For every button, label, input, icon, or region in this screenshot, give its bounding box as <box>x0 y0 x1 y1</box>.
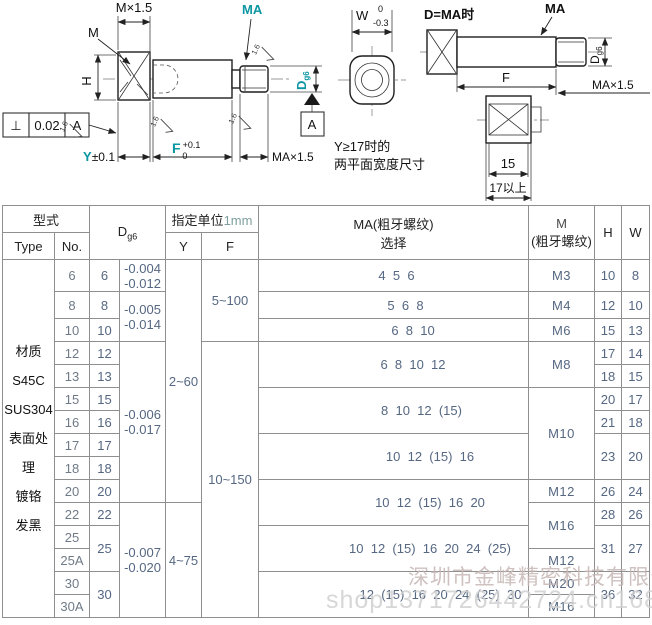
cell-ma: 6 8 10 12 <box>259 342 529 388</box>
svg-text:17以上: 17以上 <box>489 181 526 195</box>
cell-w: 17 <box>622 388 650 411</box>
cell-h: 12 <box>595 292 622 319</box>
svg-text:M×1.5: M×1.5 <box>116 0 153 15</box>
cell-ma: 12 (15) 16 20 24 (25) 30 <box>259 572 529 618</box>
cell-d: 20 <box>90 480 120 503</box>
left-view: M×1.5 M MA H <box>3 0 324 164</box>
cell-w: 8 <box>622 260 650 292</box>
cell-ma: 5 6 8 <box>259 292 529 319</box>
header-m: M(粗牙螺纹) <box>529 206 595 260</box>
cell-no: 16 <box>55 411 90 434</box>
dim-y: Y±0.1 <box>83 149 150 164</box>
roughness-icon: 1.6 <box>249 43 276 63</box>
cell-m: M12 <box>529 549 595 572</box>
cell-m: M16 <box>529 503 595 549</box>
d-label: D <box>294 81 309 90</box>
cell-y: 4~75 <box>166 503 202 618</box>
cell-m: M20 <box>529 572 595 595</box>
header-ma: MA(粗牙螺纹)选择 <box>259 206 529 260</box>
svg-text:M: M <box>88 25 99 40</box>
cell-y: 2~60 <box>166 260 202 503</box>
cell-d: 10 <box>90 319 120 342</box>
head-top-view: 15 17以上 <box>477 96 549 201</box>
dim-ma-thread: MA×1.5 <box>558 78 650 93</box>
cell-ma: 10 12 (15) 16 20 <box>259 480 529 526</box>
dim-f: F+0.10 <box>153 140 232 161</box>
flat-width-note: Y≥17时的 两平面宽度尺寸 <box>334 139 425 172</box>
screw-head <box>118 52 150 100</box>
cell-no: 8 <box>55 292 90 319</box>
dim-w: W 0 -0.3 <box>352 4 392 52</box>
table-row: 材质S45CSUS304表面处理镀铬发黑66-0.004-0.0122~605~… <box>3 260 650 292</box>
cell-d: 30 <box>90 572 120 618</box>
cell-ma: 4 5 6 <box>259 260 529 292</box>
variant-title: D=MA时 <box>424 7 474 22</box>
cell-no: 20 <box>55 480 90 503</box>
cell-h: 18 <box>595 365 622 388</box>
svg-text:0: 0 <box>378 4 383 14</box>
cell-no: 25 <box>55 526 90 549</box>
datum-triangle <box>304 93 320 105</box>
dim-17-min: 17以上 <box>486 143 531 201</box>
svg-text:MA: MA <box>242 2 263 17</box>
dim-15: 15 <box>489 143 528 177</box>
screw-shank <box>457 37 556 67</box>
header-d-g6: Dg6 <box>90 206 166 260</box>
svg-text:Y≥17时的: Y≥17时的 <box>334 139 390 154</box>
cell-d: 13 <box>90 365 120 388</box>
cell-d: 16 <box>90 411 120 434</box>
cell-h: 15 <box>595 319 622 342</box>
screw-head <box>427 30 457 74</box>
cell-m: M4 <box>529 292 595 319</box>
cell-d: 25 <box>90 526 120 572</box>
table-row: 202010 12 (15) 16 20M122624 <box>3 480 650 503</box>
screw-thread <box>240 66 268 92</box>
cell-h: 31 <box>595 526 622 572</box>
cell-w: 13 <box>622 319 650 342</box>
screw-thread <box>556 38 586 66</box>
cell-m: M8 <box>529 342 595 388</box>
svg-text:A: A <box>73 118 82 133</box>
header-h: H <box>595 206 622 260</box>
svg-text:MA×1.5: MA×1.5 <box>592 78 634 92</box>
dim-f: F <box>457 69 556 95</box>
dim-ma-thread: MA×1.5 <box>240 150 314 164</box>
svg-text:H: H <box>79 76 94 85</box>
svg-text:0.02: 0.02 <box>34 118 59 133</box>
screw-neck <box>232 70 240 88</box>
header-model: 型式 <box>3 206 90 233</box>
cell-f: 5~100 <box>202 260 259 342</box>
header-y: Y <box>166 233 202 260</box>
technical-drawing: M×1.5 M MA H <box>0 0 652 205</box>
svg-text:MA×1.5: MA×1.5 <box>272 150 314 164</box>
svg-text:F+0.10: F+0.10 <box>172 140 200 161</box>
svg-text:A: A <box>308 117 317 132</box>
d-equals-ma-view: D=MA时 MA Dg6 <box>420 1 650 95</box>
cell-no: 15 <box>55 388 90 411</box>
table-row: 88-0.005-0.0145 6 8M41210 <box>3 292 650 319</box>
perpendicularity-icon: ⊥ <box>10 118 21 133</box>
cell-d: 12 <box>90 342 120 365</box>
cell-d: 18 <box>90 457 120 480</box>
cell-h: 36 <box>595 572 622 618</box>
cell-ma: 6 8 10 <box>259 319 529 342</box>
svg-text:15: 15 <box>501 156 515 171</box>
cell-type-info: 材质S45CSUS304表面处理镀铬发黑 <box>3 260 55 618</box>
cell-w: 27 <box>622 526 650 572</box>
cell-no: 22 <box>55 503 90 526</box>
cell-no: 30A <box>55 595 90 618</box>
cell-m: M16 <box>529 595 595 618</box>
cell-h: 26 <box>595 480 622 503</box>
cell-tol: -0.005-0.014 <box>120 292 166 342</box>
cell-no: 25A <box>55 549 90 572</box>
header-unit: 指定单位1mm <box>166 206 259 233</box>
svg-text:W: W <box>356 8 369 23</box>
cell-ma: 8 10 12 (15) <box>259 388 529 434</box>
cell-h: 10 <box>595 260 622 292</box>
cell-w: 32 <box>622 572 650 618</box>
cell-w: 26 <box>622 503 650 526</box>
header-f: F <box>202 233 259 260</box>
table-row: 15158 10 12 (15)M102017 <box>3 388 650 411</box>
svg-text:1.6: 1.6 <box>249 43 262 56</box>
cell-m: M6 <box>529 319 595 342</box>
cell-w: 14 <box>622 342 650 365</box>
svg-text:Dg6: Dg6 <box>588 46 604 64</box>
datum-a: A <box>301 93 324 136</box>
label-ma: MA <box>541 1 566 35</box>
cell-w: 10 <box>622 292 650 319</box>
cell-no: 18 <box>55 457 90 480</box>
cell-h: 21 <box>595 411 622 434</box>
spec-table: 型式 Dg6 指定单位1mm MA(粗牙螺纹)选择 M(粗牙螺纹) H W Ty… <box>2 205 650 618</box>
table-row: 1212-0.006-0.01710~1506 8 10 12M81714 <box>3 342 650 365</box>
cell-h: 17 <box>595 342 622 365</box>
cell-ma: 10 12 (15) 16 20 24 (25) <box>259 526 529 572</box>
cell-no: 30 <box>55 572 90 595</box>
roughness-icon: 1.6 <box>148 115 175 135</box>
cell-h: 28 <box>595 503 622 526</box>
spec-table-body: 材质S45CSUS304表面处理镀铬发黑66-0.004-0.0122~605~… <box>3 260 650 618</box>
cell-no: 12 <box>55 342 90 365</box>
svg-text:两平面宽度尺寸: 两平面宽度尺寸 <box>334 157 425 172</box>
header-w: W <box>622 206 650 260</box>
cell-d: 17 <box>90 434 120 457</box>
cell-d: 6 <box>90 260 120 292</box>
svg-text:Dg6: Dg6 <box>294 71 311 90</box>
cell-d: 8 <box>90 292 120 319</box>
screw-shoulder <box>153 60 232 98</box>
header-type: Type <box>3 233 55 260</box>
svg-text:1.6: 1.6 <box>226 112 239 125</box>
svg-text:Y±0.1: Y±0.1 <box>83 149 115 164</box>
cell-w: 20 <box>622 434 650 480</box>
cell-h: 23 <box>595 434 622 480</box>
cell-no: 10 <box>55 319 90 342</box>
head-front-view: W 0 -0.3 <box>338 4 406 116</box>
cell-m: M12 <box>529 480 595 503</box>
cell-m: M3 <box>529 260 595 292</box>
svg-text:MA: MA <box>545 1 566 16</box>
cell-no: 6 <box>55 260 90 292</box>
cell-ma: 10 12 (15) 16 <box>259 434 529 480</box>
cell-f: 10~150 <box>202 342 259 618</box>
cell-h: 20 <box>595 388 622 411</box>
svg-text:-0.3: -0.3 <box>373 18 389 28</box>
cell-d: 22 <box>90 503 120 526</box>
cell-w: 24 <box>622 480 650 503</box>
cell-d: 15 <box>90 388 120 411</box>
cell-w: 15 <box>622 365 650 388</box>
cell-no: 17 <box>55 434 90 457</box>
catalog-page: M×1.5 M MA H <box>0 0 652 625</box>
dim-m-thread: M×1.5 <box>116 0 153 58</box>
cell-tol: -0.006-0.017 <box>120 342 166 503</box>
table-row: 303012 (15) 16 20 24 (25) 30M203632 <box>3 572 650 595</box>
cell-m: M10 <box>529 388 595 480</box>
header-no: No. <box>55 233 90 260</box>
table-row: 10106 8 10M61513 <box>3 319 650 342</box>
cell-tol: -0.004-0.012 <box>120 260 166 292</box>
dim-h: H <box>79 55 116 100</box>
cell-no: 13 <box>55 365 90 388</box>
cell-tol: -0.007-0.020 <box>120 503 166 618</box>
cell-w: 18 <box>622 411 650 434</box>
svg-text:F: F <box>502 70 510 85</box>
